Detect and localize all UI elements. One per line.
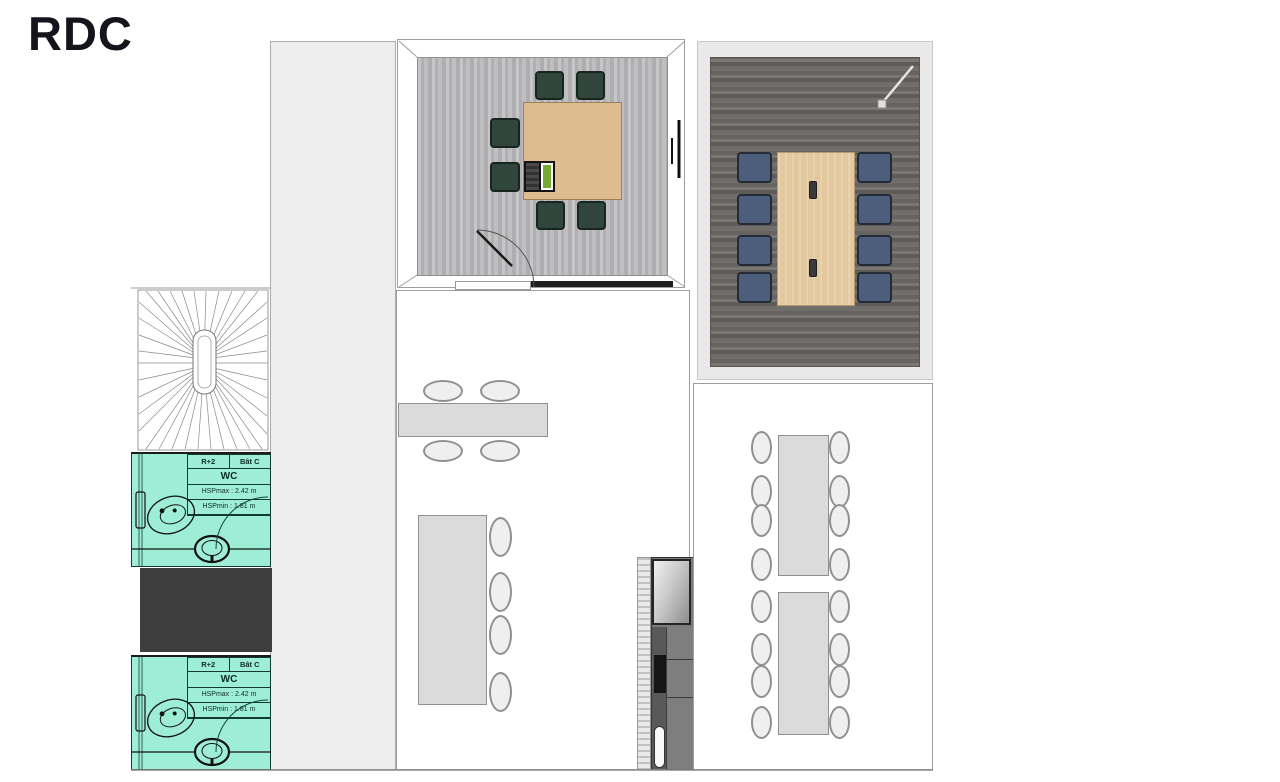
wc-room-name: WC	[188, 672, 270, 688]
wc-building-label: Bât C	[230, 658, 271, 671]
kitchen-unit	[651, 557, 694, 770]
laptop-screen	[541, 163, 553, 190]
table	[398, 403, 548, 437]
wc-info-table: R+2 Bât C WC HSPmax : 2.42 m HSPmin : 1.…	[187, 454, 271, 516]
table	[418, 515, 487, 705]
fridge	[652, 559, 691, 625]
oval-seat	[829, 504, 850, 537]
chair	[737, 152, 772, 183]
kitchen-cabinet	[667, 627, 694, 660]
wc-info-table: R+2 Bât C WC HSPmax : 2.42 m HSPmin : 1.…	[187, 657, 271, 719]
laptop-keyboard	[526, 163, 539, 190]
chair	[535, 71, 564, 100]
oval-seat	[751, 590, 772, 623]
kitchen-counter-edge	[637, 557, 651, 770]
chair	[737, 235, 772, 266]
oval-seat	[423, 380, 463, 402]
table	[778, 592, 829, 735]
cable-grommet	[809, 181, 817, 199]
chair	[857, 152, 892, 183]
wall-segment	[531, 281, 673, 287]
oval-seat	[751, 706, 772, 739]
service-shaft	[140, 568, 272, 652]
wc-building-label: Bât C	[230, 455, 271, 468]
oval-seat	[751, 431, 772, 464]
oval-seat	[489, 615, 512, 655]
wc-hspmax-label: HSPmax : 2.42 m	[188, 485, 270, 500]
laptop	[524, 161, 555, 192]
chair	[536, 201, 565, 230]
wc-level-label: R+2	[188, 455, 230, 468]
oval-seat	[489, 517, 512, 557]
floor-plan: RDC R+2 Bât C WC HSPmax : 2.42 m HSPmin …	[0, 0, 1280, 782]
wc-room: R+2 Bât C WC HSPmax : 2.42 m HSPmin : 1.…	[131, 452, 271, 567]
oval-seat	[829, 590, 850, 623]
oval-seat	[751, 548, 772, 581]
cable-grommet	[809, 259, 817, 277]
chair	[737, 272, 772, 303]
chair	[490, 118, 520, 148]
oval-seat	[751, 504, 772, 537]
oval-seat	[829, 633, 850, 666]
oval-seat	[423, 440, 463, 462]
oval-seat	[489, 672, 512, 712]
kitchen-cabinet	[667, 698, 694, 770]
page-title: RDC	[28, 6, 133, 61]
oval-seat	[480, 440, 520, 462]
wc-hspmin-label: HSPmin : 1.81 m	[188, 500, 270, 515]
chair	[857, 235, 892, 266]
door-opening	[455, 281, 531, 290]
chair	[857, 194, 892, 225]
table	[778, 435, 829, 576]
oval-seat	[829, 706, 850, 739]
chair	[577, 201, 606, 230]
wc-room-name: WC	[188, 469, 270, 485]
oval-seat	[480, 380, 520, 402]
oval-seat	[829, 665, 850, 698]
corridor	[270, 41, 396, 770]
sink	[654, 726, 665, 768]
wc-room: R+2 Bât C WC HSPmax : 2.42 m HSPmin : 1.…	[131, 655, 271, 770]
staircase	[131, 288, 270, 450]
wc-level-label: R+2	[188, 658, 230, 671]
wc-hspmax-label: HSPmax : 2.42 m	[188, 688, 270, 703]
conference-table	[777, 152, 855, 306]
oval-seat	[751, 633, 772, 666]
kitchen-cabinet	[667, 660, 694, 698]
chair	[737, 194, 772, 225]
oval-seat	[751, 665, 772, 698]
oval-seat	[829, 431, 850, 464]
chair	[576, 71, 605, 100]
oval-seat	[489, 572, 512, 612]
oval-seat	[829, 548, 850, 581]
wc-hspmin-label: HSPmin : 1.81 m	[188, 703, 270, 718]
oven	[654, 655, 666, 693]
chair	[490, 162, 520, 192]
chair	[857, 272, 892, 303]
